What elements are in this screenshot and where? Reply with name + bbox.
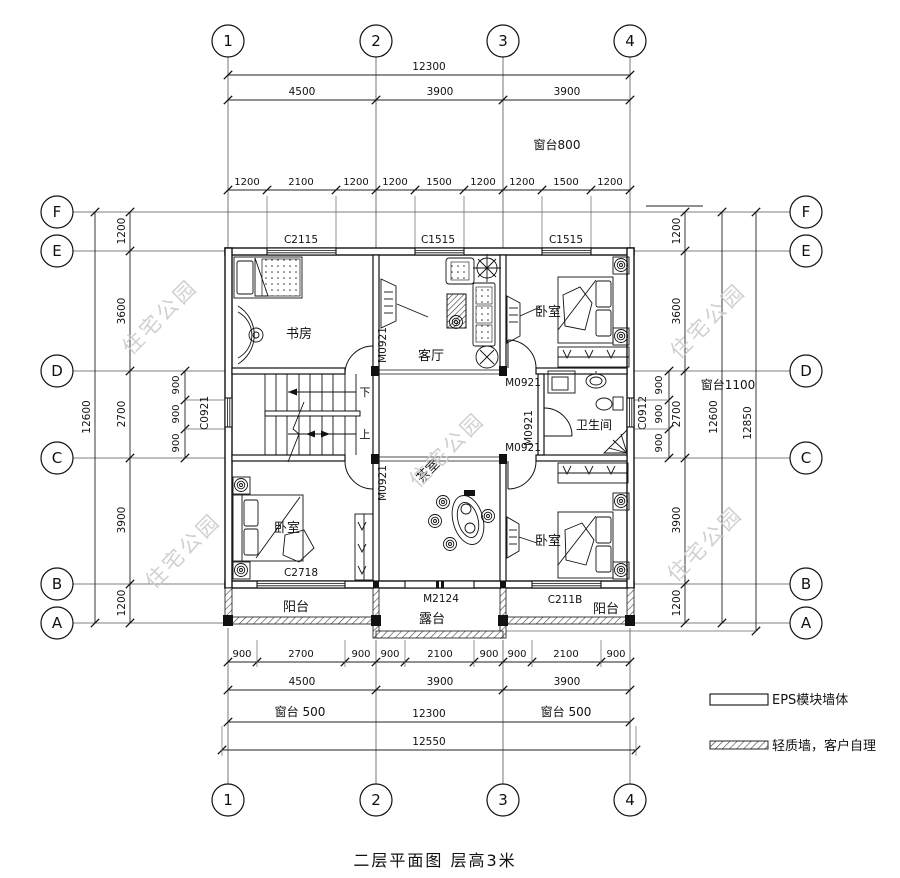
dim-left-in-2: 900 xyxy=(171,404,182,423)
dim-bot-outer-total: 12550 xyxy=(412,736,445,748)
grid-row-d-r: D xyxy=(800,362,812,380)
dim-right-seg-4: 3900 xyxy=(671,507,683,534)
grid-row-b-r: B xyxy=(801,575,811,593)
window-c2115 xyxy=(267,248,336,255)
grid-bubbles xyxy=(41,25,822,816)
grid-row-f-r: F xyxy=(802,203,811,221)
sill-note-top: 窗台800 xyxy=(534,137,581,152)
dim-right-seg-3: 2700 xyxy=(671,401,683,428)
grid-col-3: 3 xyxy=(498,32,508,50)
room-label-bedroom-ne: 卧室 xyxy=(535,304,561,320)
grid-col-4b: 4 xyxy=(625,791,635,809)
dims-top: 12300 4500 3900 3900 窗台800 1200 2100 120… xyxy=(224,61,634,248)
legend-swatch-eps xyxy=(710,694,768,705)
grid-row-a: A xyxy=(52,614,63,632)
dim-bot-inner-total: 12300 xyxy=(412,708,445,720)
dim-left-seg-4: 3900 xyxy=(116,507,128,534)
dim-top-total: 12300 xyxy=(412,61,445,73)
bedroom-ne-furniture xyxy=(507,257,629,367)
sill-note-right: 窗台1100 xyxy=(701,377,756,392)
floor-plan-drawing: 1 2 3 4 1 2 3 4 F E D C B A F E D C B A … xyxy=(0,0,900,874)
room-label-bath: 卫生间 xyxy=(576,418,612,432)
dim-top-s3: 1200 xyxy=(343,177,368,188)
dim-right-in-2: 900 xyxy=(654,404,665,423)
grid-row-a-r: A xyxy=(801,614,812,632)
windows xyxy=(225,248,634,588)
dim-bot-s5: 2100 xyxy=(427,649,452,660)
balcony-right-rail xyxy=(503,617,634,624)
room-label-bedroom-sw: 卧室 xyxy=(274,520,300,536)
watermark-3: 住宅公园 xyxy=(405,408,490,493)
window-c0921 xyxy=(225,398,232,427)
dim-left-total: 12600 xyxy=(81,400,93,433)
dim-left-in-3: 900 xyxy=(171,433,182,452)
stair-up-label: 上 xyxy=(360,428,371,441)
dim-bot-s7: 900 xyxy=(507,649,526,660)
dim-bot-s6: 900 xyxy=(479,649,498,660)
sheet-title: 二层平面图 层高3米 xyxy=(353,851,516,870)
door-code-m2124: M2124 xyxy=(423,593,459,605)
dim-bot-s4: 900 xyxy=(380,649,399,660)
legend: EPS模块墙体 轻质墙，客户自理 xyxy=(710,693,876,754)
window-c2118 xyxy=(532,581,601,588)
window-code-c1515-b: C1515 xyxy=(549,234,583,246)
window-code-c1515-a: C1515 xyxy=(421,234,455,246)
door-bedroom-ne xyxy=(508,340,536,368)
grid-col-1b: 1 xyxy=(223,791,233,809)
dim-top-seg-3: 3900 xyxy=(554,86,581,98)
dim-bot-s1: 900 xyxy=(232,649,251,660)
grid-col-2: 2 xyxy=(371,32,381,50)
door-code-m0921-sw: M0921 xyxy=(377,465,389,501)
floor-plan-sheet: 1 2 3 4 1 2 3 4 F E D C B A F E D C B A … xyxy=(0,0,900,874)
room-label-bedroom-se: 卧室 xyxy=(535,533,561,549)
bedroom-sw-furniture xyxy=(233,477,373,580)
window-code-c2118: C211B xyxy=(548,594,583,606)
stair-down-label: 下 xyxy=(360,386,371,399)
room-label-terrace: 露台 xyxy=(419,612,445,627)
door-code-m0921-bath: M0921 xyxy=(523,410,535,446)
grid-col-2b: 2 xyxy=(371,791,381,809)
dim-bot-s9: 900 xyxy=(606,649,625,660)
grid-row-c: C xyxy=(52,449,62,467)
walls xyxy=(225,248,634,588)
dim-right-seg-2: 3600 xyxy=(671,298,683,325)
dim-left-seg-1: 1200 xyxy=(116,218,128,245)
dim-bot-s2: 2700 xyxy=(288,649,313,660)
dims-bottom: 900 2700 900 900 2100 900 900 2100 900 4… xyxy=(218,640,640,756)
window-code-c2718: C2718 xyxy=(284,567,318,579)
balcony-left-rail xyxy=(225,617,376,624)
grid-bubble-labels: 1 2 3 4 1 2 3 4 F E D C B A F E D C B A xyxy=(51,32,812,809)
dim-right-total: 12600 xyxy=(708,400,720,433)
dim-top-s8: 1500 xyxy=(553,177,578,188)
dim-top-s5: 1500 xyxy=(426,177,451,188)
terrace-rail xyxy=(376,631,503,638)
door-study xyxy=(345,346,373,374)
stair-rail xyxy=(265,411,360,416)
sill-note-bottom-right: 窗台 500 xyxy=(541,704,592,719)
grid-row-c-r: C xyxy=(801,449,811,467)
dim-right-in-1: 900 xyxy=(654,375,665,394)
window-c0912 xyxy=(627,398,634,427)
legend-swatch-light-wall xyxy=(710,741,768,749)
grid-row-e-r: E xyxy=(801,242,810,260)
grid-row-d: D xyxy=(51,362,63,380)
door-code-m0921-ne: M0921 xyxy=(505,377,541,389)
dim-top-s9: 1200 xyxy=(597,177,622,188)
bath-fixtures xyxy=(548,371,627,453)
dim-right-in-3: 900 xyxy=(654,433,665,452)
dim-bot-seg-1: 4500 xyxy=(289,676,316,688)
grid-col-3b: 3 xyxy=(498,791,508,809)
dim-bot-s8: 2100 xyxy=(553,649,578,660)
window-c2718 xyxy=(257,581,345,588)
room-label-living: 客厅 xyxy=(418,348,444,364)
window-c1515-living xyxy=(415,248,464,255)
grid-row-b: B xyxy=(52,575,62,593)
dim-bot-s3: 900 xyxy=(351,649,370,660)
dim-right-seg-5: 1200 xyxy=(671,590,683,617)
dim-top-seg-1: 4500 xyxy=(289,86,316,98)
dim-top-s7: 1200 xyxy=(509,177,534,188)
dim-right-outer-total: 12850 xyxy=(742,406,754,439)
window-code-c2115: C2115 xyxy=(284,234,318,246)
door-bedroom-se xyxy=(508,461,536,489)
dim-left-seg-3: 2700 xyxy=(116,401,128,428)
dim-top-s1: 1200 xyxy=(234,177,259,188)
dim-top-s6: 1200 xyxy=(470,177,495,188)
room-label-study: 书房 xyxy=(286,326,312,342)
legend-label-light-wall: 轻质墙，客户自理 xyxy=(772,738,876,754)
grid-row-e: E xyxy=(52,242,61,260)
study-furniture xyxy=(234,257,302,364)
bedroom-se-furniture xyxy=(507,463,629,579)
window-code-c0912: C0912 xyxy=(637,396,649,430)
sill-note-bottom-left: 窗台 500 xyxy=(275,704,326,719)
grid-row-f: F xyxy=(53,203,62,221)
window-code-c0921: C0921 xyxy=(199,396,211,430)
dim-bot-seg-2: 3900 xyxy=(427,676,454,688)
watermark-2: 住宅公园 xyxy=(141,509,226,594)
dim-left-in-1: 900 xyxy=(171,375,182,394)
dim-top-s4: 1200 xyxy=(382,177,407,188)
window-c1515-bedroom xyxy=(542,248,591,255)
dim-top-s2: 2100 xyxy=(288,177,313,188)
stairs: 下 上 xyxy=(265,374,371,462)
dim-left-seg-2: 3600 xyxy=(116,298,128,325)
legend-label-eps: EPS模块墙体 xyxy=(772,693,848,708)
dim-bot-seg-3: 3900 xyxy=(554,676,581,688)
dim-left-seg-5: 1200 xyxy=(116,590,128,617)
opening-m2124 xyxy=(405,581,474,588)
grid-col-1: 1 xyxy=(223,32,233,50)
room-label-balcony-left: 阳台 xyxy=(283,600,309,615)
room-label-balcony-right: 阳台 xyxy=(593,602,619,617)
grid-col-4: 4 xyxy=(625,32,635,50)
door-code-m0921-study: M0921 xyxy=(377,327,389,363)
door-bath xyxy=(544,408,572,436)
dim-right-seg-1: 1200 xyxy=(671,218,683,245)
tea-furniture xyxy=(429,490,495,551)
dim-top-seg-2: 3900 xyxy=(427,86,454,98)
door-bedroom-sw xyxy=(345,461,373,489)
